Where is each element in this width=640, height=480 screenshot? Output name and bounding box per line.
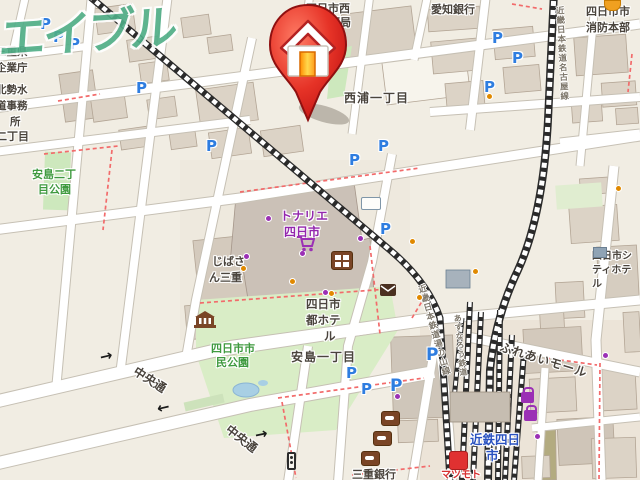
parking-icon: P xyxy=(206,139,217,154)
museum-icon xyxy=(194,311,216,328)
bank-atm-icon xyxy=(373,431,392,446)
map-canvas[interactable]: 三重県 企業庁 北勢水 道事務 所 二丁目 四日市西 郵便局 愛知銀行 四日市市… xyxy=(0,0,640,480)
bank-atm-icon xyxy=(381,411,400,426)
shopping-bag-icon xyxy=(521,392,534,403)
label-city-hotel-line2: ティホテ xyxy=(592,266,631,276)
label-mie-pref-line5: 所 xyxy=(10,117,21,128)
poi-dot-orange xyxy=(240,265,247,272)
bank-atm-icon xyxy=(361,451,380,466)
label-yasujima-park-line2: 目公園 xyxy=(38,184,71,195)
poi-dot-purple xyxy=(357,235,364,242)
parking-icon: P xyxy=(426,347,438,364)
post-office-icon xyxy=(380,284,396,296)
parking-icon: P xyxy=(492,31,503,46)
poi-dot-orange xyxy=(289,278,296,285)
label-matsumoto: マツモト xyxy=(441,471,481,480)
label-nichome: 二丁目 xyxy=(0,131,29,142)
parking-icon: P xyxy=(378,139,389,154)
label-shimin-park-line2: 民公園 xyxy=(216,357,249,368)
shopping-cart-icon xyxy=(295,235,317,252)
label-miyako-hotel-line2: 都ホテ xyxy=(306,315,341,327)
label-kintetsu-station-line2: 市 xyxy=(486,450,499,463)
traffic-light-icon xyxy=(287,452,296,470)
label-shimin-park-line1: 四日市市 xyxy=(211,343,255,354)
signboard-icon xyxy=(361,197,381,210)
fire-station-icon xyxy=(604,0,621,11)
parking-icon: P xyxy=(136,81,147,96)
poi-dot-orange xyxy=(416,294,423,301)
label-fire-dept-line2: 消防本部 xyxy=(586,22,630,33)
poi-dot-purple xyxy=(394,393,401,400)
poi-dot-orange xyxy=(472,268,479,275)
drugstore-icon xyxy=(449,451,468,470)
poi-dot-purple xyxy=(602,352,609,359)
label-jibasan-line2: ん三重 xyxy=(209,272,242,283)
poi-dot-orange xyxy=(409,238,416,245)
label-yasujima-park-line1: 安島二丁 xyxy=(32,169,76,180)
poi-dot-purple xyxy=(265,215,272,222)
poi-dot-orange xyxy=(615,185,622,192)
shopping-bag-icon xyxy=(524,410,537,421)
label-mie-pref-line4: 道事務 xyxy=(0,101,28,112)
poi-dot-orange xyxy=(328,290,335,297)
property-location-pin[interactable] xyxy=(258,0,358,130)
pin-graphic xyxy=(258,0,358,130)
label-kintetsu-station-line1: 近鉄四日 xyxy=(470,434,520,447)
label-aichi-bank: 愛知銀行 xyxy=(431,4,475,15)
label-miyako-hotel-line3: ル xyxy=(324,331,336,343)
poi-dot-purple xyxy=(243,253,250,260)
parking-icon: P xyxy=(512,51,523,66)
poi-dot-orange xyxy=(486,93,493,100)
poi-dot-purple xyxy=(534,433,541,440)
label-yasujima-1chome: 安島一丁目 xyxy=(291,351,356,363)
parking-icon: P xyxy=(346,366,357,381)
label-mie-pref-line3: 北勢水 xyxy=(0,85,28,96)
parking-icon: P xyxy=(380,222,391,237)
department-store-icon xyxy=(331,251,353,270)
label-city-hotel-line3: ル xyxy=(592,280,602,290)
parking-icon: P xyxy=(361,382,372,397)
hotel-icon xyxy=(593,247,607,258)
label-miyako-hotel-line1: 四日市 xyxy=(306,299,341,311)
label-mie-bank: 三重銀行 xyxy=(352,469,396,480)
parking-icon: P xyxy=(349,153,360,168)
label-tonarie-line1: トナリエ xyxy=(280,210,328,222)
